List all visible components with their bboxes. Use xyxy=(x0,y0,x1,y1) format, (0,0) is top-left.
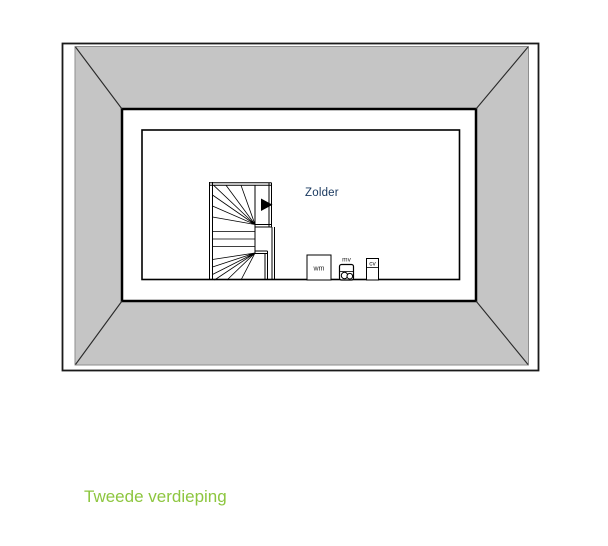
attic-room-walls xyxy=(142,130,460,280)
mechanical-ventilation-label: mv xyxy=(342,257,351,264)
room-label: Zolder xyxy=(305,187,339,199)
floor-title: Tweede verdieping xyxy=(84,487,227,507)
central-heating-label: cv xyxy=(369,261,376,268)
floorplan-page: Zolder wm mv cv Tweede verdieping xyxy=(0,0,608,546)
fan-icon xyxy=(347,273,353,279)
washing-machine: wm xyxy=(307,255,331,280)
floorplan-drawing: Zolder wm mv cv xyxy=(0,0,608,546)
washing-machine-label: wm xyxy=(313,266,325,273)
central-heating-boiler: cv xyxy=(367,259,379,281)
